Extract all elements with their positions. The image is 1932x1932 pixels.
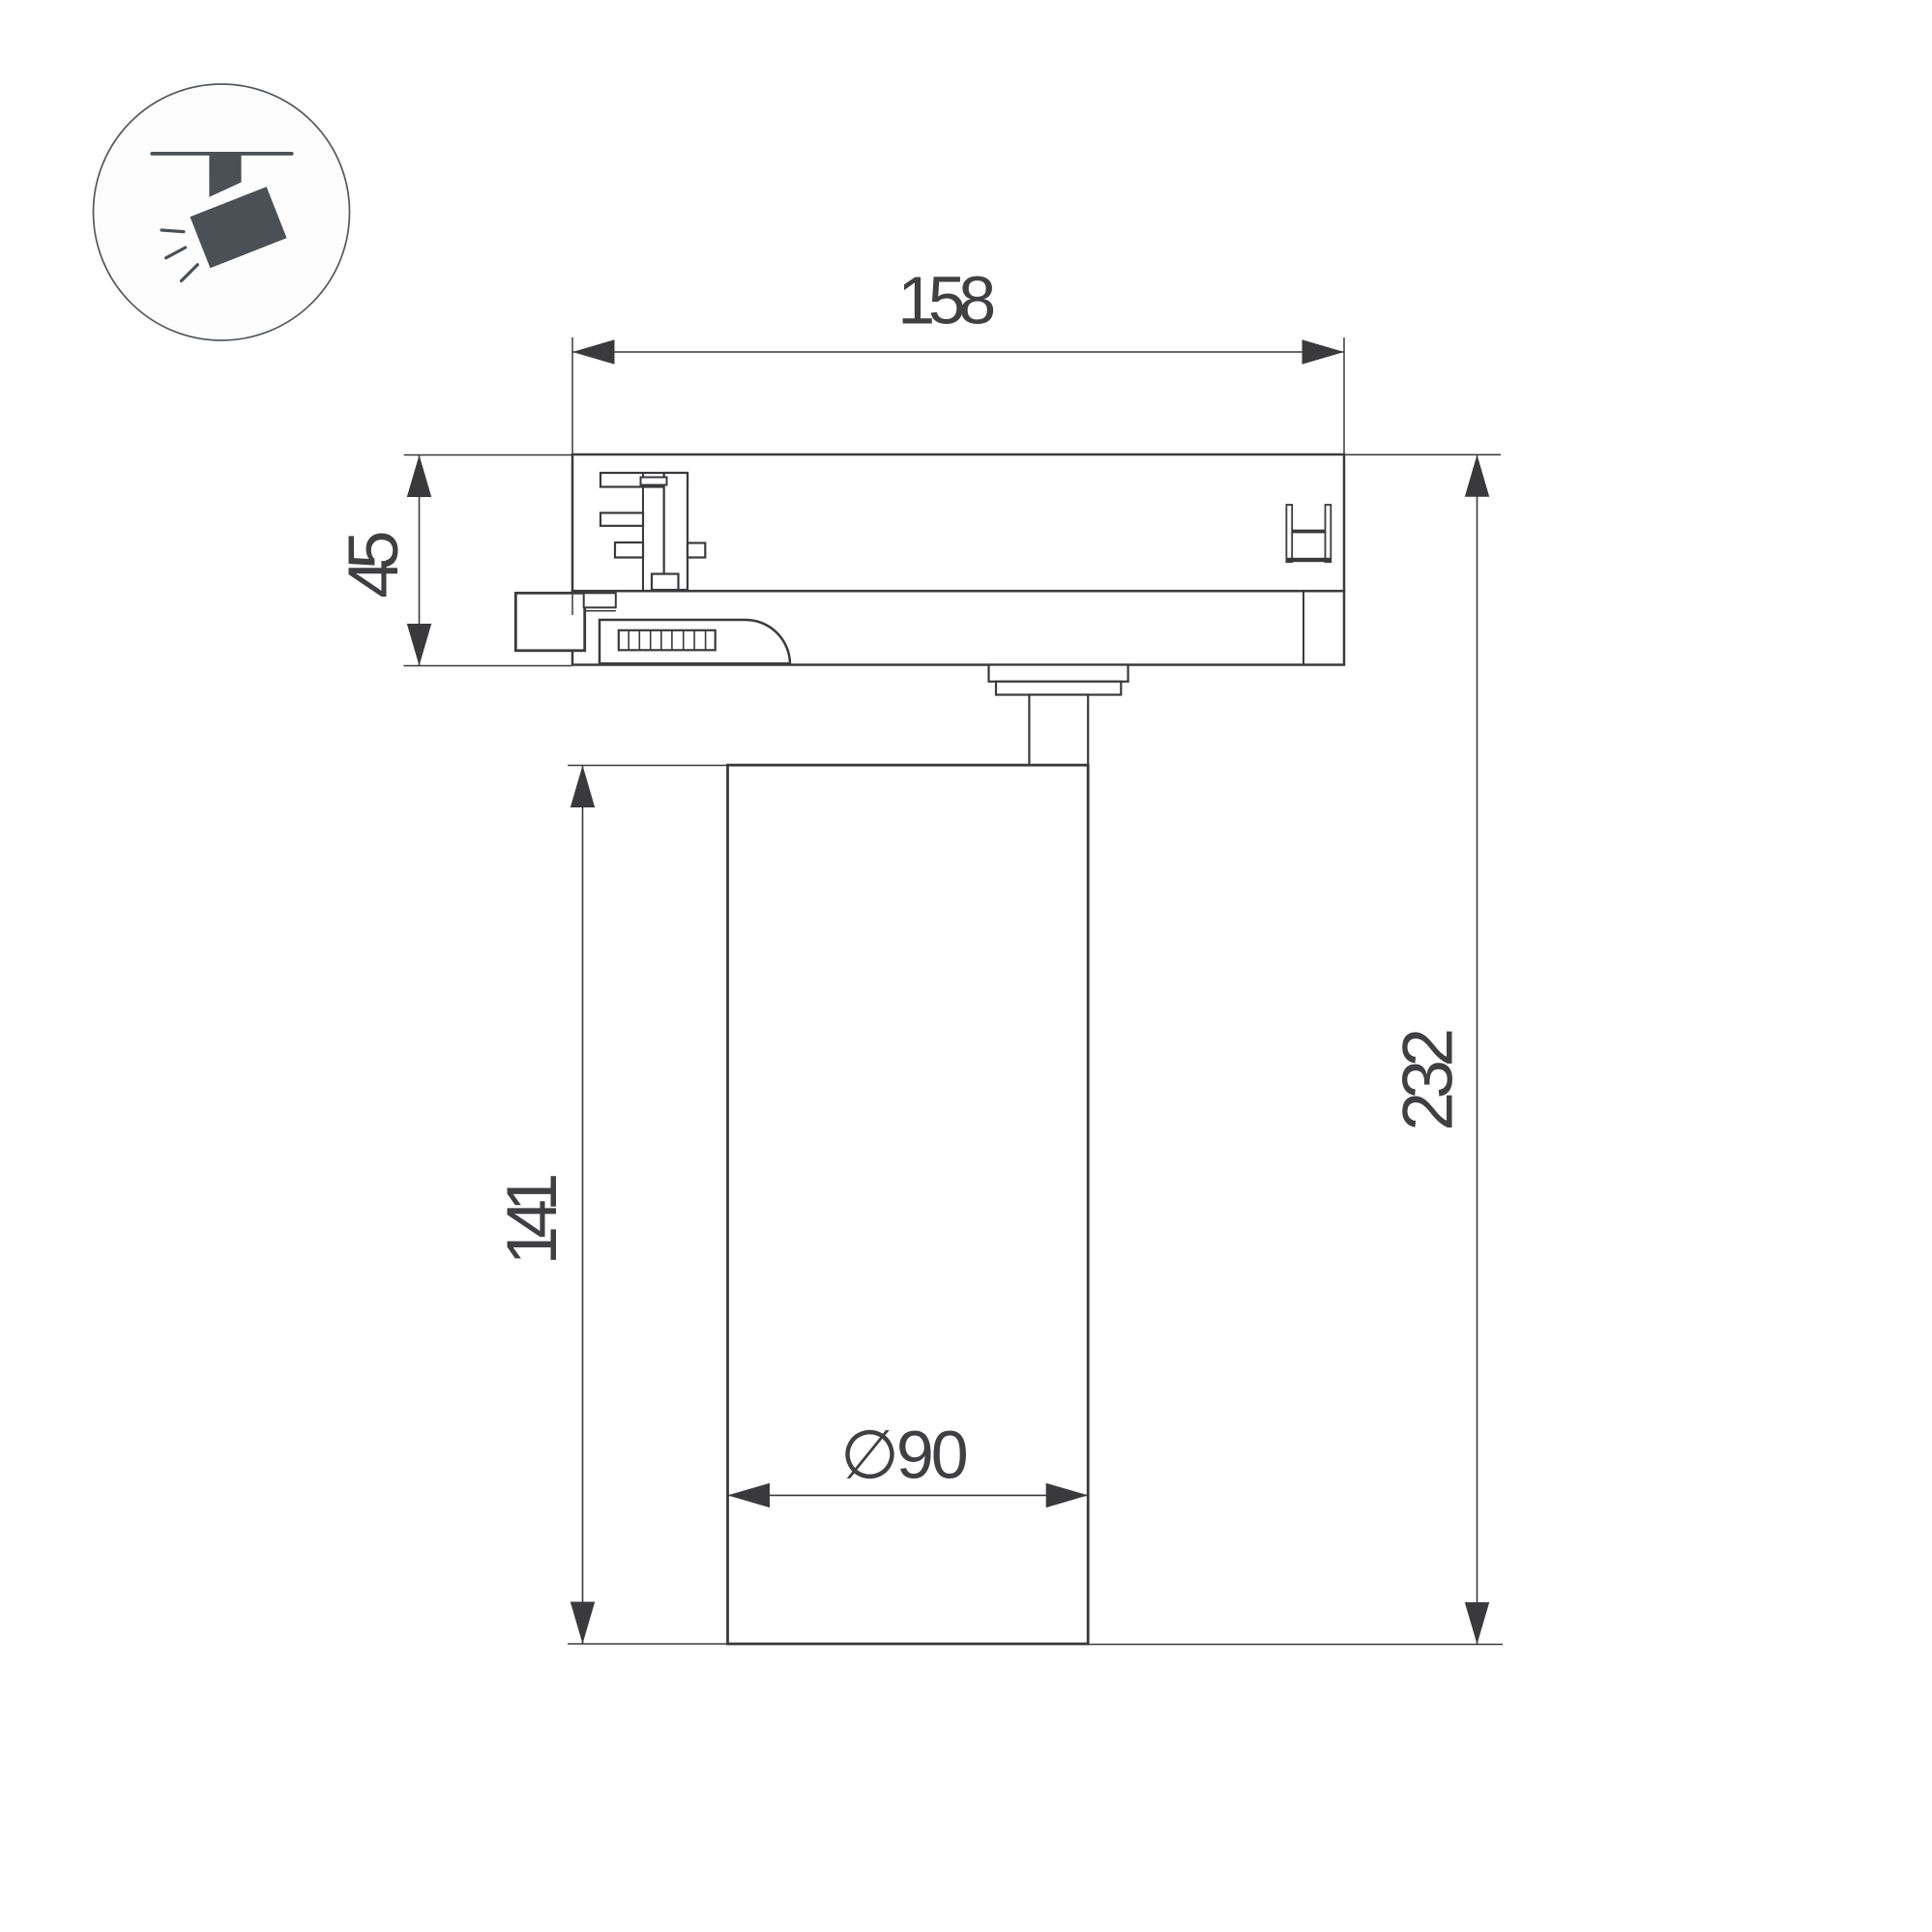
svg-text:158: 158	[897, 263, 993, 338]
svg-text:∅90: ∅90	[840, 1418, 967, 1493]
svg-text:141: 141	[493, 1175, 571, 1265]
svg-text:45: 45	[335, 533, 413, 599]
svg-text:232: 232	[1390, 1031, 1468, 1130]
